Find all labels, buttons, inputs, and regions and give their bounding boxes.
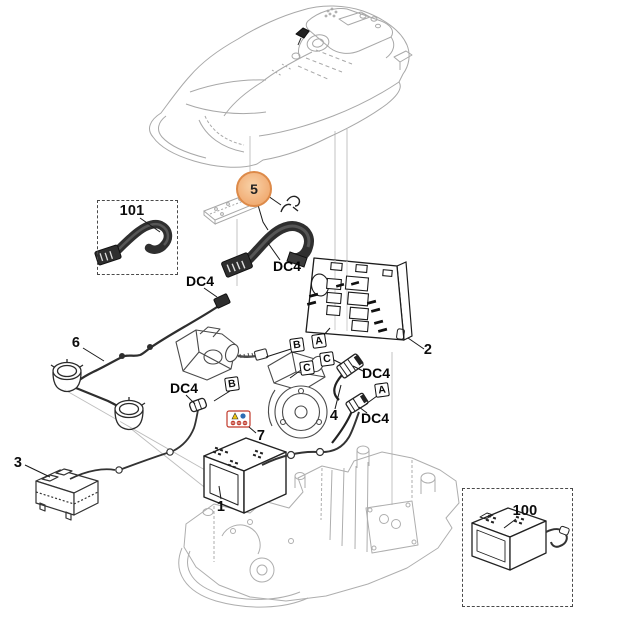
callout-6: 6 <box>72 335 80 351</box>
callout-7: 7 <box>257 428 265 444</box>
sensor-dome <box>51 359 83 392</box>
cable-clip-part <box>281 196 299 212</box>
port-badge-b-1: B <box>289 337 305 353</box>
mower-top-housing <box>150 6 412 167</box>
callout-3: 3 <box>14 455 22 471</box>
callout-4: 4 <box>330 408 338 424</box>
callout-2: 2 <box>424 342 432 358</box>
highlighted-callout-5[interactable]: 5 <box>236 171 272 207</box>
dc4-label-4: DC4 <box>362 365 390 381</box>
callout-101: 101 <box>120 203 145 219</box>
dc4-label-2: DC4 <box>186 273 214 289</box>
right-wheel-motor <box>268 352 327 438</box>
port-badge-c-2: C <box>299 360 315 376</box>
dc4-label-1: DC4 <box>273 258 301 274</box>
left-wheel-motor <box>176 327 268 380</box>
callout-1: 1 <box>217 499 225 515</box>
warning-sticker-icon <box>227 411 250 427</box>
highlight-number: 5 <box>250 181 258 197</box>
callout-100: 100 <box>513 503 538 519</box>
port-badge-a-1: A <box>311 333 327 349</box>
dc4-label-5: DC4 <box>361 410 389 426</box>
parts-diagram-page: 5 101 2 6 3 4 7 1 100 DC4 DC4 DC4 DC4 DC… <box>0 0 626 628</box>
port-badge-a-2: A <box>374 382 390 398</box>
dc4-label-3: DC4 <box>170 380 198 396</box>
port-badge-c-1: C <box>319 351 335 367</box>
sensor-dome <box>113 397 145 430</box>
port-badge-b-2: B <box>224 376 240 392</box>
control-board <box>306 258 412 340</box>
